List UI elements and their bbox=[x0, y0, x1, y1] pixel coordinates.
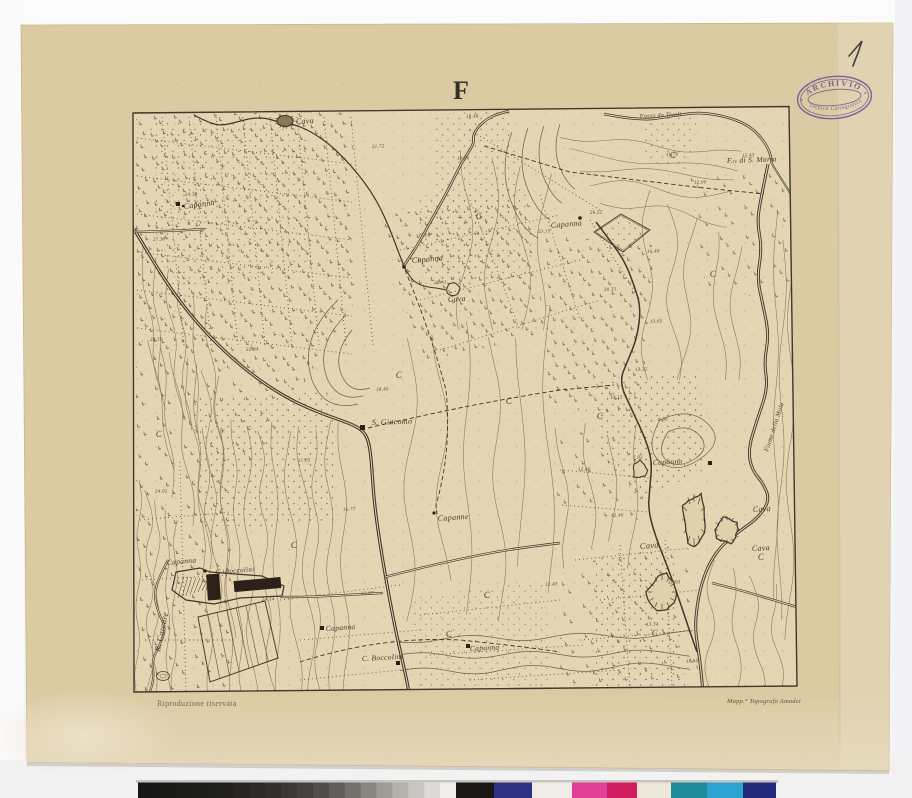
svg-text:12.42: 12.42 bbox=[578, 467, 591, 473]
svg-text:20.41: 20.41 bbox=[434, 280, 447, 286]
svg-text:Riproduzione riservata: Riproduzione riservata bbox=[157, 699, 237, 708]
svg-text:S. Giacomo: S. Giacomo bbox=[372, 417, 413, 427]
svg-text:22.84: 22.84 bbox=[246, 347, 259, 353]
svg-text:Cava: Cava bbox=[448, 294, 467, 304]
svg-text:28.50: 28.50 bbox=[150, 337, 163, 343]
svg-text:*: * bbox=[864, 91, 868, 98]
svg-text:24.36: 24.36 bbox=[185, 192, 198, 198]
svg-text:26.52: 26.52 bbox=[590, 210, 603, 216]
svg-text:7.92: 7.92 bbox=[633, 455, 643, 461]
svg-text:13.65: 13.65 bbox=[650, 319, 663, 325]
svg-text:15.12: 15.12 bbox=[610, 395, 623, 401]
svg-text:23.15: 23.15 bbox=[538, 229, 551, 235]
svg-text:*: * bbox=[800, 98, 804, 105]
svg-text:11.76: 11.76 bbox=[666, 152, 679, 158]
svg-text:19.46: 19.46 bbox=[457, 156, 470, 162]
svg-text:10.93: 10.93 bbox=[668, 580, 681, 586]
svg-text:16.77: 16.77 bbox=[343, 507, 356, 513]
svg-text:21.05: 21.05 bbox=[298, 458, 311, 464]
svg-text:13.31: 13.31 bbox=[646, 622, 659, 628]
svg-text:18.40: 18.40 bbox=[376, 387, 389, 393]
svg-text:15.43: 15.43 bbox=[742, 153, 755, 159]
svg-text:16.40: 16.40 bbox=[647, 249, 660, 255]
svg-text:12.40: 12.40 bbox=[611, 513, 624, 519]
svg-text:21.72: 21.72 bbox=[372, 144, 385, 150]
svg-text:24.14: 24.14 bbox=[262, 597, 275, 603]
svg-text:13.32: 13.32 bbox=[635, 367, 648, 373]
svg-text:12.00: 12.00 bbox=[694, 180, 707, 186]
svg-text:Cava: Cava bbox=[639, 539, 659, 551]
svg-text:Capanna: Capanna bbox=[653, 456, 683, 467]
svg-text:27.39: 27.39 bbox=[153, 237, 166, 243]
svg-text:17.60: 17.60 bbox=[418, 233, 431, 239]
svg-text:8.50: 8.50 bbox=[658, 417, 668, 423]
svg-text:24.02: 24.02 bbox=[155, 489, 168, 495]
svg-text:Cava: Cava bbox=[753, 504, 772, 514]
svg-text:Mapp.° Topografo Amadei: Mapp.° Topografo Amadei bbox=[726, 698, 801, 705]
svg-text:F: F bbox=[453, 76, 469, 105]
svg-text:11.90: 11.90 bbox=[686, 659, 699, 665]
svg-text:15.07: 15.07 bbox=[361, 591, 374, 597]
svg-text:Cava: Cava bbox=[296, 116, 315, 126]
svg-text:18.48: 18.48 bbox=[466, 114, 479, 120]
svg-text:20.31: 20.31 bbox=[604, 287, 617, 293]
svg-text:13.43: 13.43 bbox=[545, 582, 558, 588]
svg-text:Capanna: Capanna bbox=[470, 642, 500, 653]
